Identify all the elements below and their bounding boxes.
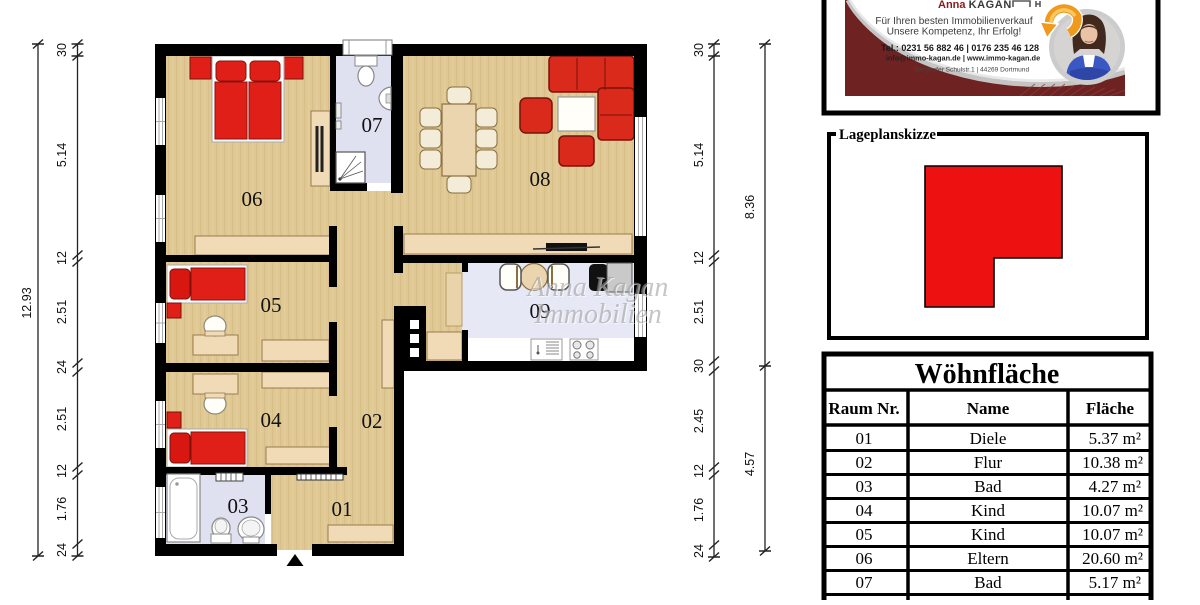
svg-text:Kind: Kind [971,525,1006,544]
svg-text:12.93: 12.93 [20,287,34,318]
svg-text:Flur: Flur [974,453,1003,472]
svg-text:30: 30 [692,43,706,57]
svg-text:12: 12 [692,251,706,265]
svg-text:5.17 m²: 5.17 m² [1089,573,1141,592]
svg-text:Immobilien: Immobilien [533,299,662,330]
svg-text:4.27 m²: 4.27 m² [1089,477,1141,496]
svg-text:Anna KAGAN: Anna KAGAN [938,0,1012,11]
svg-text:10.07 m²: 10.07 m² [1082,501,1143,520]
svg-text:Name: Name [967,399,1010,418]
svg-text:2.51: 2.51 [55,300,69,324]
svg-text:Kind: Kind [971,501,1006,520]
svg-text:24: 24 [55,360,69,374]
svg-text:04: 04 [856,501,874,520]
svg-text:03: 03 [856,477,873,496]
svg-text:30: 30 [55,43,69,57]
svg-text:8.36: 8.36 [743,195,757,219]
svg-text:05: 05 [261,293,282,317]
svg-text:01: 01 [856,429,873,448]
svg-text:Lageplanskizze: Lageplanskizze [839,127,936,143]
svg-text:10.07 m²: 10.07 m² [1082,525,1143,544]
svg-text:5.37 m²: 5.37 m² [1089,429,1141,448]
svg-text:24: 24 [55,543,69,557]
svg-text:12: 12 [55,251,69,265]
svg-text:2.51: 2.51 [692,300,706,324]
svg-text:07: 07 [856,573,874,592]
svg-text:10.38 m²: 10.38 m² [1082,453,1143,472]
svg-text:2.51: 2.51 [55,407,69,431]
svg-text:Fläche: Fläche [1086,399,1135,418]
svg-text:Berghofer Schulstr.1 | 44269 D: Berghofer Schulstr.1 | 44269 Dortmund [915,67,1030,74]
svg-text:02: 02 [362,409,383,433]
svg-text:Raum Nr.: Raum Nr. [828,399,899,418]
svg-text:02: 02 [856,453,873,472]
svg-text:30: 30 [692,359,706,373]
svg-text:08: 08 [530,167,551,191]
svg-text:4.57: 4.57 [743,452,757,476]
svg-text:Unsere Kompetenz, Ihr Erfolg!: Unsere Kompetenz, Ihr Erfolg! [887,27,1022,38]
svg-text:1.76: 1.76 [55,497,69,521]
svg-text:5.14: 5.14 [692,143,706,167]
svg-text:Tel.: 0231 56 882 46 | 0176 23: Tel.: 0231 56 882 46 | 0176 235 46 128 [881,43,1039,53]
svg-text:07: 07 [362,113,383,137]
svg-text:24: 24 [692,544,706,558]
svg-text:06: 06 [242,187,263,211]
svg-text:12: 12 [692,464,706,478]
svg-text:12: 12 [55,464,69,478]
svg-text:Bad: Bad [974,573,1002,592]
svg-text:5.14: 5.14 [55,143,69,167]
svg-text:20.60 m²: 20.60 m² [1082,549,1143,568]
svg-text:06: 06 [856,549,873,568]
svg-text:Bad: Bad [974,477,1002,496]
svg-text:Für Ihren besten Immobilienver: Für Ihren besten Immobilienverkauf [875,16,1033,27]
svg-text:Eltern: Eltern [967,549,1009,568]
svg-text:03: 03 [228,494,249,518]
svg-text:01: 01 [332,497,353,521]
svg-text:Diele: Diele [970,429,1007,448]
svg-text:1.76: 1.76 [692,498,706,522]
svg-text:info@immo-kagan.de | www.immo-: info@immo-kagan.de | www.immo-kagan.de [886,54,1040,63]
svg-text:04: 04 [261,408,283,432]
svg-text:Wöhnfläche: Wöhnfläche [915,359,1060,390]
svg-text:2.45: 2.45 [692,409,706,433]
svg-text:05: 05 [856,525,873,544]
